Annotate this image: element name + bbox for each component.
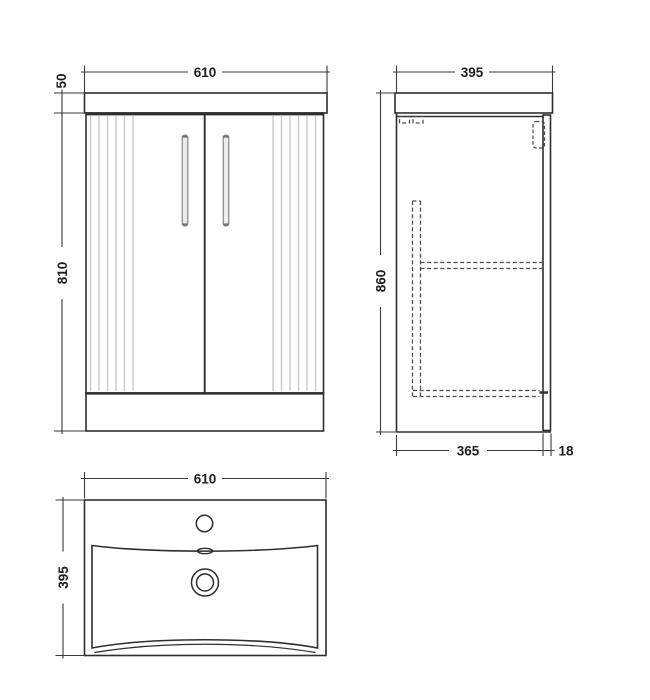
side-hidden-shelf	[421, 263, 543, 269]
side-depth-label: 395	[461, 65, 484, 80]
side-view	[395, 93, 553, 432]
front-cabinet-height-label: 810	[55, 262, 70, 285]
front-worktop-height-dimension: 50	[54, 73, 85, 116]
side-height-dimension: 860	[373, 90, 397, 435]
basin-inner-bowl	[92, 546, 318, 649]
basin-view	[85, 500, 327, 656]
side-depth-dimension: 395	[393, 65, 556, 93]
basin-outer-rim	[85, 500, 327, 656]
basin-tap-hole	[196, 515, 212, 531]
side-hidden-pipe	[413, 201, 421, 397]
front-flutes-left	[91, 116, 134, 391]
side-door-projection-label: 18	[558, 444, 574, 459]
front-right-door-handle	[223, 135, 229, 226]
side-carcass-depth-label: 365	[457, 444, 480, 459]
front-flutes-right	[273, 116, 316, 391]
technical-drawing-canvas: 610 50 810	[0, 0, 650, 700]
front-plinth	[86, 393, 324, 431]
front-view	[85, 93, 328, 431]
side-hidden-bottom-panel	[413, 391, 548, 397]
side-hinge-plate-1	[400, 117, 410, 124]
front-worktop	[85, 93, 328, 113]
basin-depth-label: 395	[56, 566, 71, 589]
basin-depth-dimension: 395	[55, 497, 85, 659]
front-worktop-height-label: 50	[54, 73, 69, 88]
front-width-label: 610	[194, 65, 217, 80]
basin-width-label: 610	[194, 472, 217, 487]
basin-waste-inner	[197, 574, 214, 591]
front-width-dimension: 610	[81, 65, 330, 93]
side-hinge-plate-2	[413, 117, 423, 124]
front-left-door-handle	[182, 135, 188, 226]
side-height-label: 860	[374, 270, 389, 293]
side-worktop	[395, 93, 553, 113]
side-door-slab	[543, 115, 551, 431]
basin-width-dimension: 610	[81, 471, 329, 499]
side-bottom-dimensions: 365 18	[393, 434, 574, 459]
front-cabinet-height-dimension: 810	[54, 113, 86, 434]
basin-waste-outer	[192, 569, 219, 596]
basin-bowl-bottom-curve	[95, 644, 316, 652]
vanity-dimension-drawing: 610 50 810	[0, 0, 650, 700]
